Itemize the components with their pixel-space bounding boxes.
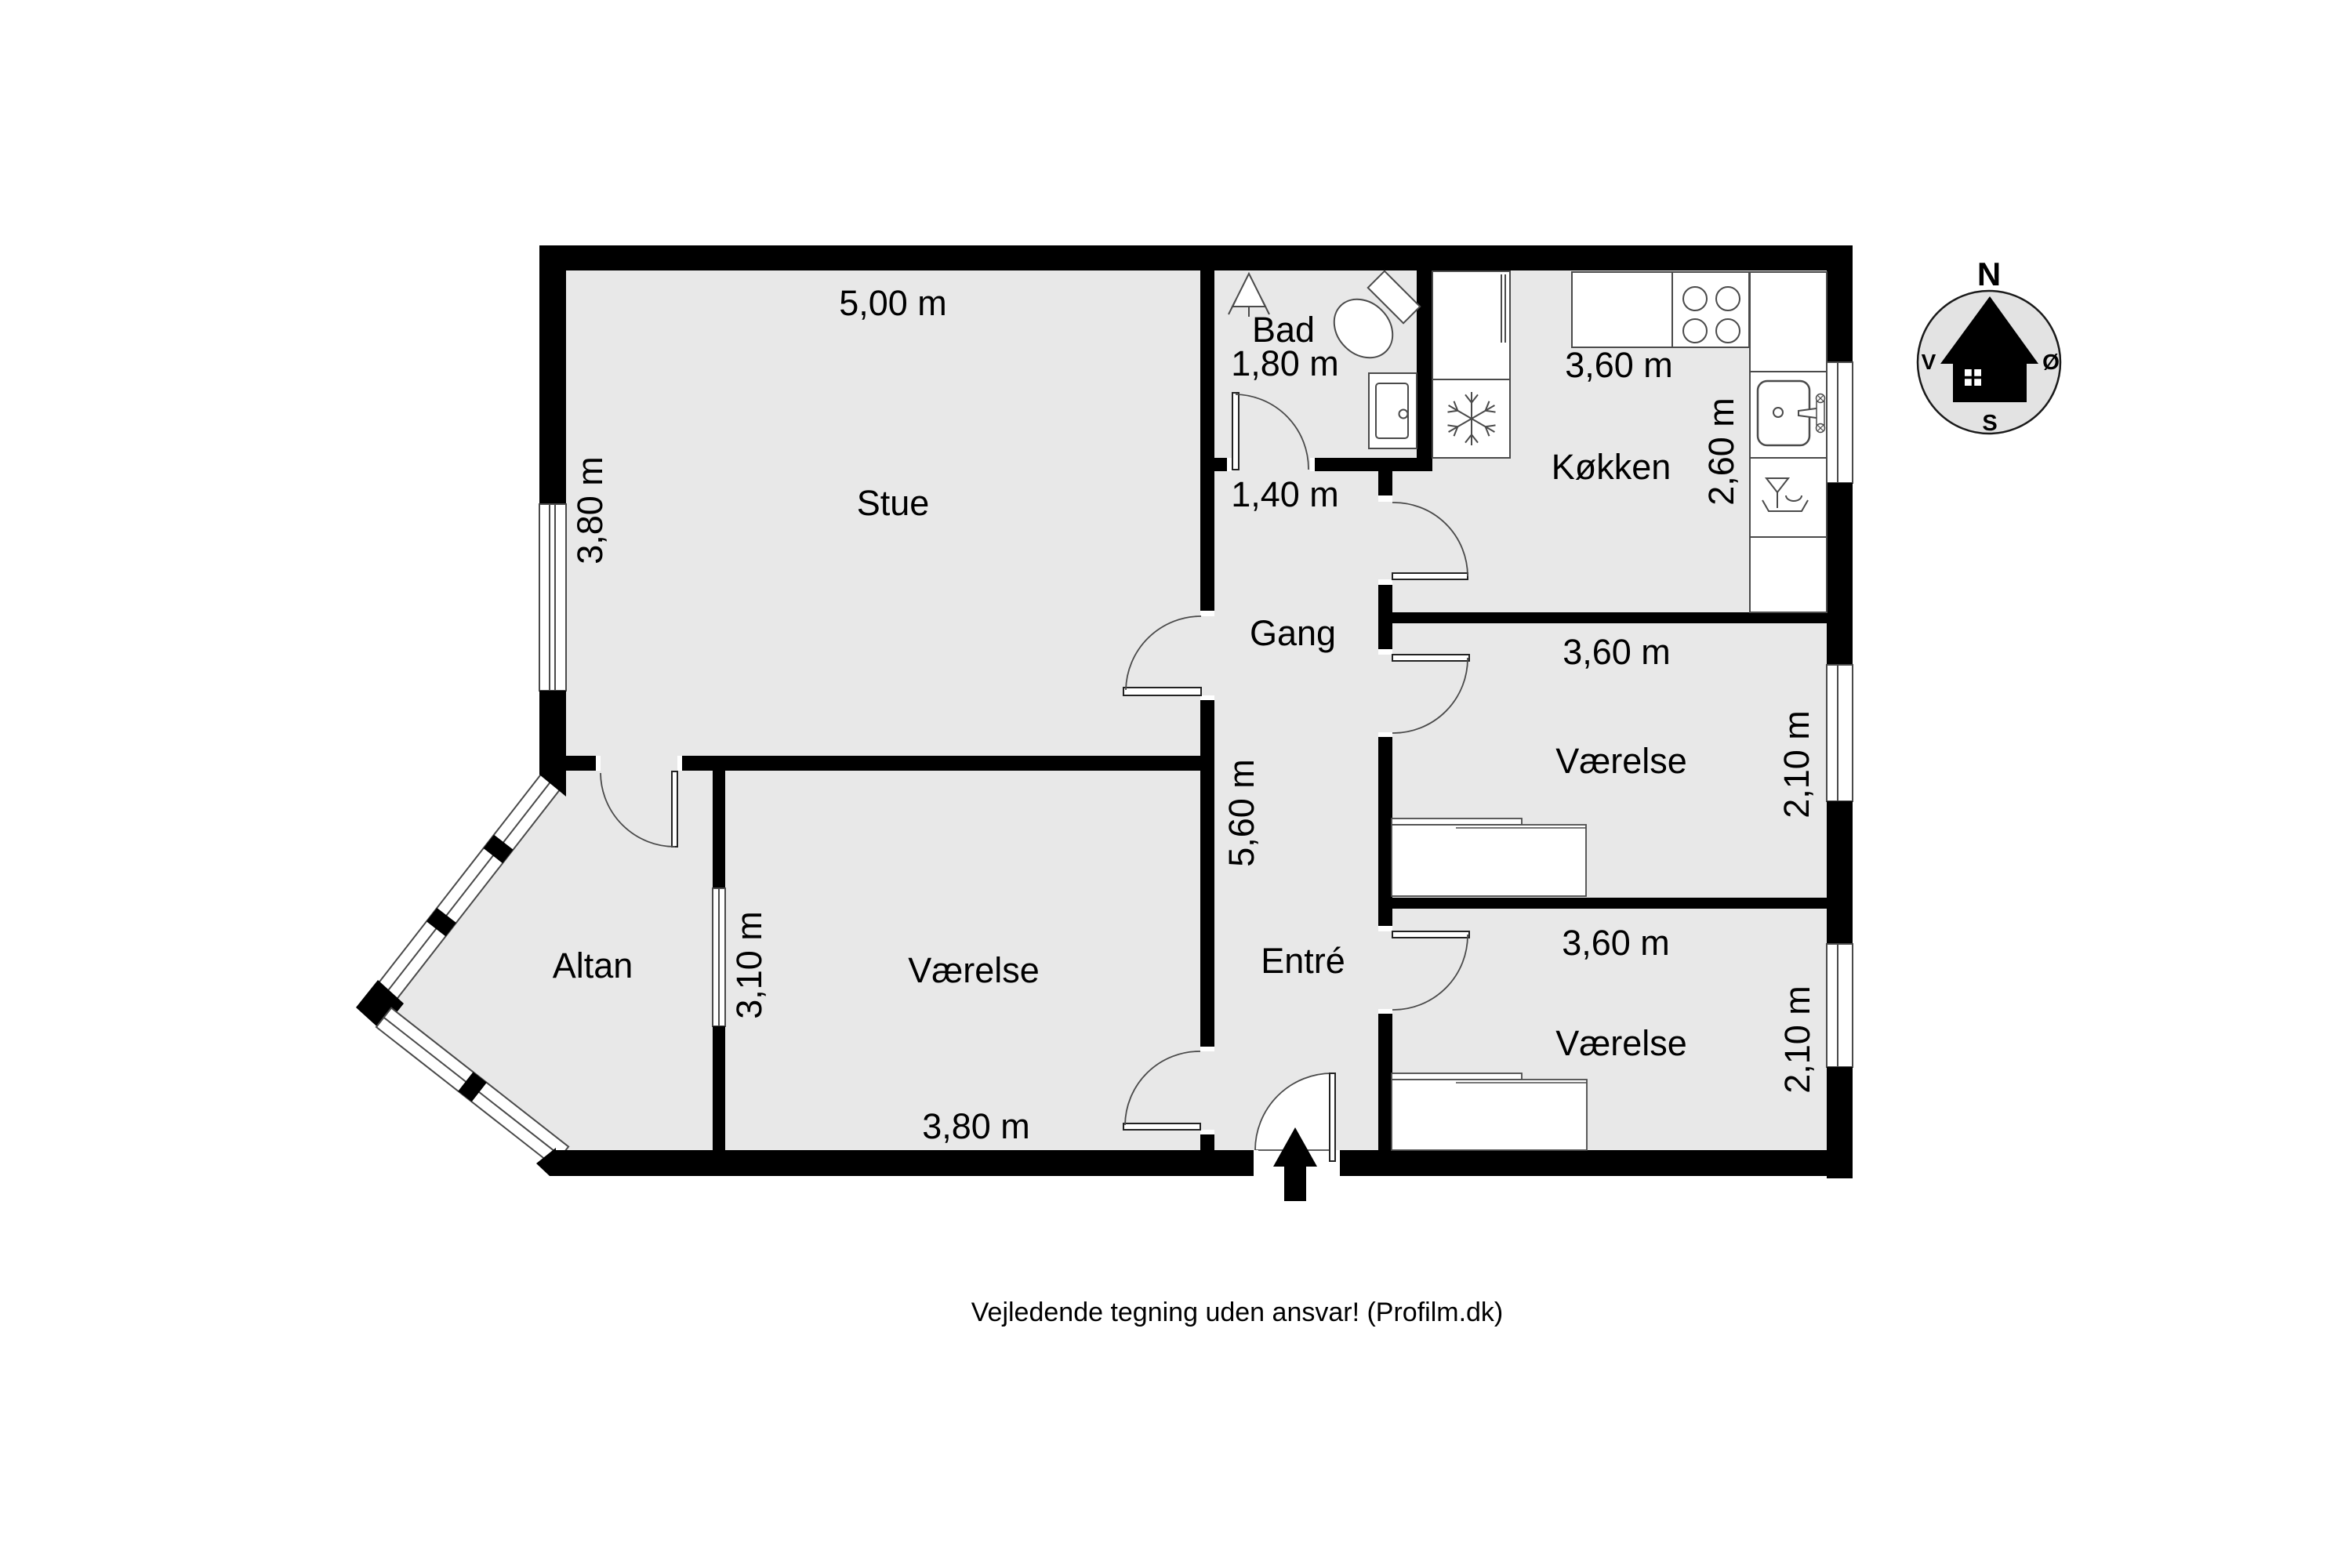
svg-text:S: S: [1982, 411, 1997, 436]
svg-text:3,60 m: 3,60 m: [1562, 923, 1670, 963]
svg-text:Vejledende tegning uden ansvar: Vejledende tegning uden ansvar! (Profilm…: [971, 1298, 1504, 1327]
svg-text:5,00 m: 5,00 m: [839, 283, 947, 323]
svg-text:3,10 m: 3,10 m: [729, 911, 769, 1019]
svg-text:3,80 m: 3,80 m: [570, 456, 610, 564]
svg-text:Altan: Altan: [553, 946, 633, 985]
svg-text:Værelse: Værelse: [1555, 741, 1687, 781]
svg-text:3,60 m: 3,60 m: [1563, 632, 1671, 672]
svg-text:1,40 m: 1,40 m: [1231, 474, 1339, 514]
svg-text:3,80 m: 3,80 m: [922, 1106, 1030, 1146]
svg-text:2,10 m: 2,10 m: [1777, 710, 1817, 818]
svg-text:5,60 m: 5,60 m: [1221, 759, 1261, 867]
svg-text:Køkken: Køkken: [1552, 447, 1671, 487]
svg-text:2,10 m: 2,10 m: [1777, 985, 1817, 1094]
svg-text:Entré: Entré: [1261, 941, 1345, 981]
svg-text:Stue: Stue: [857, 483, 930, 523]
svg-text:1,80 m: 1,80 m: [1231, 343, 1339, 383]
svg-text:N: N: [1977, 256, 2001, 292]
svg-text:3,60 m: 3,60 m: [1565, 345, 1673, 385]
svg-text:V: V: [1922, 350, 1936, 374]
svg-text:Gang: Gang: [1250, 613, 1336, 653]
svg-text:2,60 m: 2,60 m: [1701, 397, 1741, 506]
svg-text:Værelse: Værelse: [1555, 1023, 1687, 1063]
svg-text:Ø: Ø: [2042, 350, 2060, 374]
svg-text:Værelse: Værelse: [908, 950, 1040, 990]
